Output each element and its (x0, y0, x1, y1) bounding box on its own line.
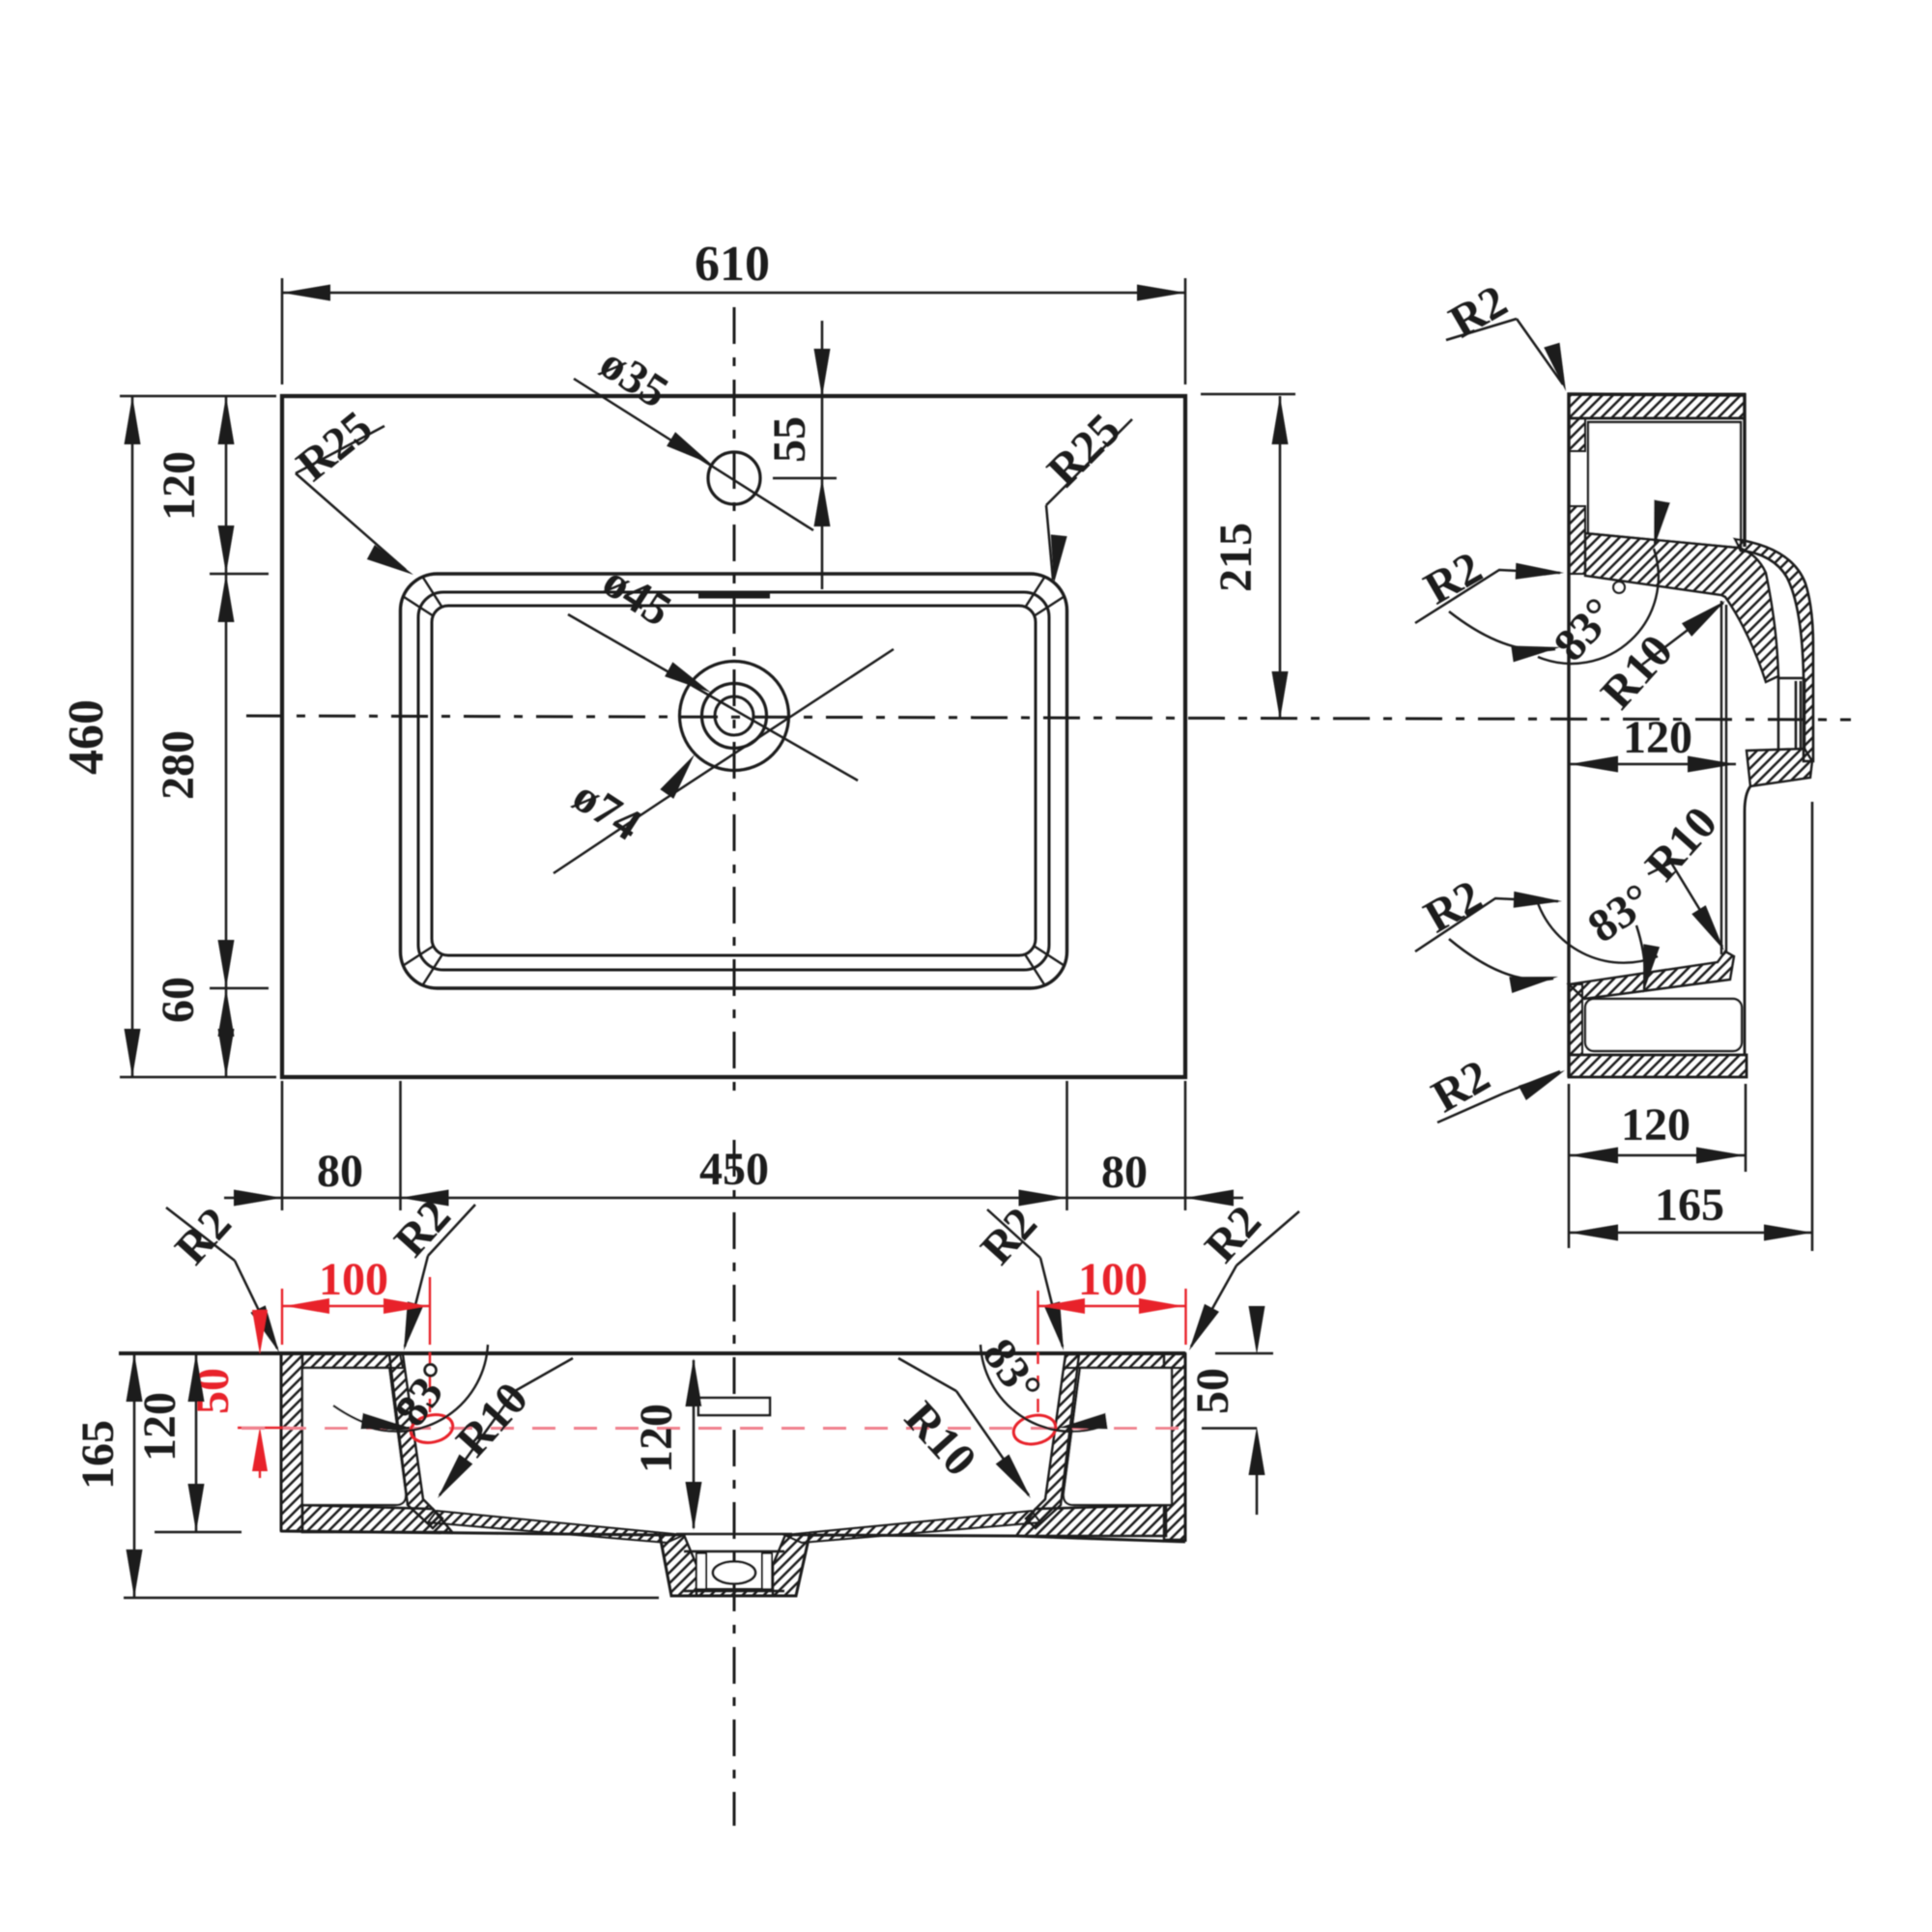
svg-text:120: 120 (1623, 712, 1692, 763)
svg-text:60: 60 (153, 977, 204, 1023)
svg-text:100: 100 (1078, 1254, 1148, 1305)
svg-text:610: 610 (695, 237, 770, 292)
svg-text:50: 50 (1187, 1368, 1238, 1414)
svg-text:280: 280 (153, 730, 204, 800)
svg-text:215: 215 (1210, 523, 1262, 592)
svg-text:450: 450 (699, 1144, 769, 1195)
svg-text:120: 120 (134, 1392, 185, 1462)
svg-text:165: 165 (1655, 1179, 1724, 1231)
svg-text:165: 165 (72, 1420, 124, 1490)
svg-text:80: 80 (317, 1146, 363, 1197)
svg-text:55: 55 (764, 416, 815, 463)
svg-text:100: 100 (319, 1254, 388, 1305)
svg-text:120: 120 (1621, 1099, 1690, 1151)
svg-text:120: 120 (154, 451, 205, 521)
svg-text:120: 120 (631, 1404, 682, 1473)
svg-text:460: 460 (59, 699, 114, 775)
svg-text:80: 80 (1101, 1147, 1148, 1198)
